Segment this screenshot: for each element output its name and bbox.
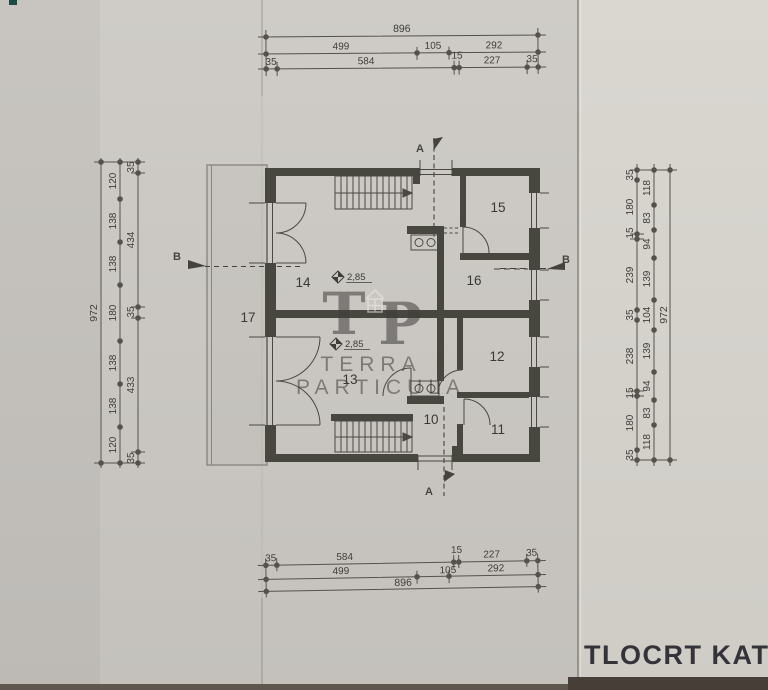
dim-label: 138 bbox=[108, 354, 119, 371]
dim-label: 238 bbox=[625, 347, 636, 364]
dim-label: 120 bbox=[108, 436, 119, 453]
dim-label: 94 bbox=[642, 380, 653, 392]
dim-label: 35 bbox=[625, 449, 636, 461]
dim-label: 180 bbox=[108, 304, 119, 321]
dim-label: 584 bbox=[358, 56, 375, 67]
room-label-12: 12 bbox=[489, 349, 504, 364]
dim-label: 292 bbox=[487, 563, 504, 574]
room-label-15: 15 bbox=[490, 200, 505, 215]
dim-label: 239 bbox=[625, 266, 636, 283]
room-label-11: 11 bbox=[491, 422, 505, 437]
dim-label: 35 bbox=[625, 169, 636, 181]
drawing-title: TLOCRT KATA bbox=[584, 640, 768, 670]
dim-label: 118 bbox=[642, 434, 653, 450]
watermark-line1: TERRA bbox=[320, 353, 421, 376]
dim-label: 105 bbox=[439, 565, 456, 576]
dim-label: 139 bbox=[642, 270, 653, 287]
dim-label: 35 bbox=[126, 161, 137, 173]
dim-label: 896 bbox=[393, 23, 411, 35]
dim-label: 15 bbox=[451, 545, 463, 556]
dim-label: 35 bbox=[265, 57, 277, 68]
dim-label: 15 bbox=[625, 387, 636, 399]
dim-label: 227 bbox=[484, 55, 501, 66]
section-letter-b-right: B bbox=[562, 254, 570, 266]
dim-label: 35 bbox=[526, 548, 538, 559]
dim-label: 139 bbox=[642, 342, 653, 359]
dim-label: 180 bbox=[625, 414, 636, 431]
wall-kitchen bbox=[437, 234, 444, 381]
dim-label: 180 bbox=[625, 198, 636, 215]
section-letter-a-bottom: A bbox=[425, 486, 433, 498]
dim-label: 896 bbox=[394, 577, 412, 589]
floor-plan-drawing: 896 499 105 292 35 584 15 227 35 35 584 … bbox=[0, 0, 768, 690]
dim-label: 972 bbox=[658, 306, 670, 324]
dim-label: 35 bbox=[126, 452, 137, 464]
dim-label: 433 bbox=[126, 376, 137, 393]
watermark-letter-t: T bbox=[322, 280, 365, 348]
dim-label: 83 bbox=[642, 212, 653, 224]
dim-label: 138 bbox=[108, 397, 119, 414]
room-label-14: 14 bbox=[295, 275, 311, 290]
paper-right-sheet bbox=[578, 0, 768, 690]
watermark-letter-p: P bbox=[378, 290, 422, 358]
dim-label: 15 bbox=[625, 227, 636, 239]
terrace-outline bbox=[207, 165, 267, 465]
dim-label: 499 bbox=[333, 41, 350, 52]
section-letter-b-left: B bbox=[173, 251, 181, 263]
dim-label: 434 bbox=[126, 231, 137, 248]
section-letter-a-top: A bbox=[416, 143, 424, 155]
room-label-16: 16 bbox=[466, 273, 481, 288]
dim-label: 972 bbox=[88, 304, 100, 322]
dim-label: 35 bbox=[265, 553, 277, 564]
room-label-10: 10 bbox=[423, 412, 438, 427]
dim-label: 15 bbox=[451, 51, 463, 62]
dim-label: 584 bbox=[336, 552, 353, 563]
dim-label: 118 bbox=[642, 180, 653, 196]
dim-label: 35 bbox=[526, 54, 538, 65]
dim-label: 138 bbox=[108, 212, 119, 229]
room-label-17: 17 bbox=[240, 310, 255, 325]
dim-label: 499 bbox=[332, 566, 349, 577]
scanned-floor-plan-photo: 896 499 105 292 35 584 15 227 35 35 584 … bbox=[0, 0, 768, 690]
dim-label: 83 bbox=[642, 407, 653, 419]
dim-label: 35 bbox=[625, 309, 636, 321]
wall-stairs bbox=[331, 414, 413, 421]
dim-label: 138 bbox=[108, 255, 119, 272]
dim-label: 94 bbox=[642, 238, 653, 250]
corner-mark bbox=[9, 0, 17, 5]
dim-label: 292 bbox=[486, 40, 503, 51]
dim-label: 227 bbox=[483, 549, 500, 560]
dim-label: 120 bbox=[108, 172, 119, 189]
dim-label: 35 bbox=[126, 306, 137, 318]
dim-label: 104 bbox=[642, 306, 653, 323]
watermark-line2: PARTICULA bbox=[296, 376, 466, 399]
dim-label: 105 bbox=[425, 41, 442, 52]
